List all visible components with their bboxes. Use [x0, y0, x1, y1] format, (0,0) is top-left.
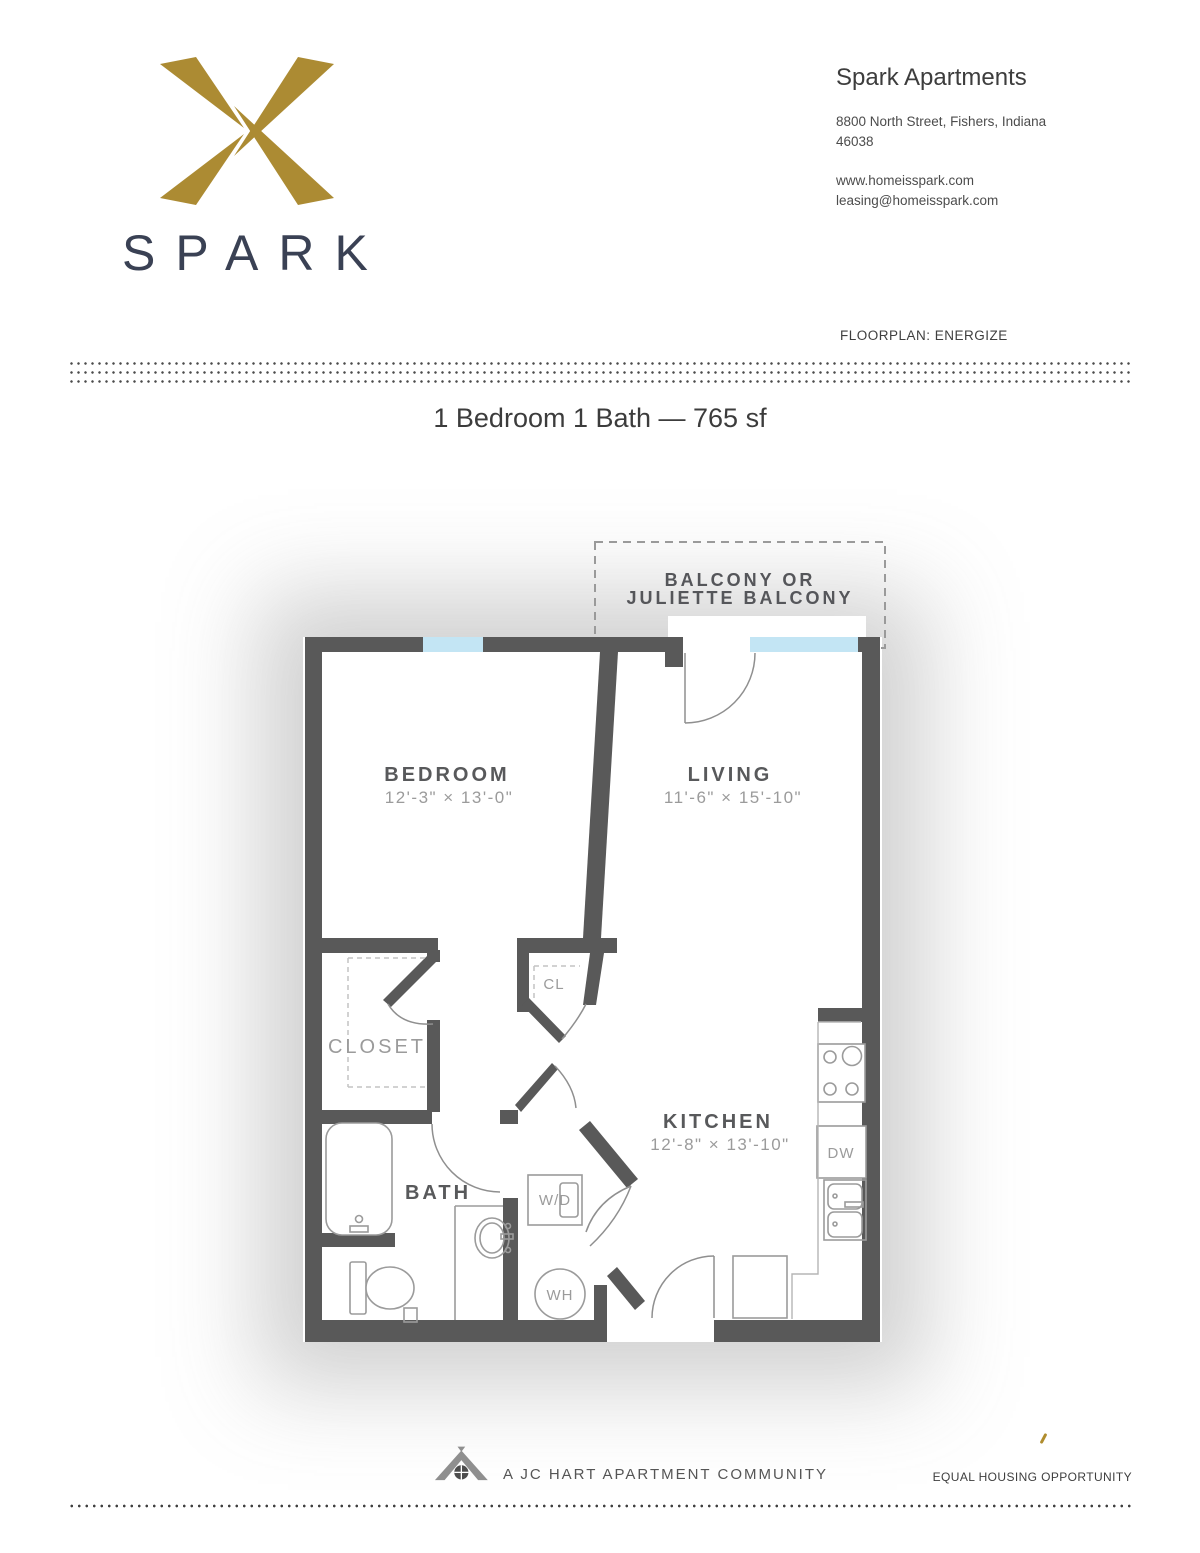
dotted-divider-top	[68, 357, 1132, 383]
closet-door-swing	[388, 1004, 433, 1024]
closet-door-leaf	[383, 953, 438, 1007]
fixtures	[326, 1022, 866, 1322]
washer-dryer-label: W/D	[539, 1192, 571, 1209]
logo-wordmark: SPARK	[122, 224, 388, 282]
bath-label: BATH	[405, 1182, 471, 1204]
living-dims: 11'-6" × 15'-10"	[664, 788, 802, 807]
closet-label: CLOSET	[328, 1036, 426, 1058]
cl-label: CL	[543, 976, 564, 993]
entry-closet-swing-2	[590, 1186, 631, 1246]
logo-blade-bottom-right	[234, 106, 334, 205]
floorplan-drawing: BALCONY OR JULIETTE BALCONY	[290, 520, 900, 1350]
water-heater-label: WH	[547, 1287, 574, 1304]
logo-blade-top-right	[234, 57, 334, 156]
refrigerator	[733, 1256, 787, 1318]
jchart-house-icon	[433, 1437, 491, 1491]
gold-mark	[1040, 1433, 1048, 1444]
cl-door-leaf	[522, 998, 566, 1043]
floorplan-flyer-page: SPARK Spark Apartments 8800 North Street…	[0, 0, 1200, 1553]
wall-entry-angled-1	[579, 1121, 638, 1188]
wall-bottom-left	[305, 1320, 607, 1342]
header-contact-block: Spark Apartments 8800 North Street, Fish…	[836, 64, 1166, 211]
email-link[interactable]: leasing@homeisspark.com	[836, 191, 1166, 211]
entry-door-swing	[652, 1256, 714, 1318]
balcony-label-line2: JULIETTE BALCONY	[626, 588, 853, 608]
logo-blade-top-left	[160, 57, 244, 128]
bedroom-dims: 12'-3" × 13'-0"	[385, 788, 513, 807]
balcony-label-line1: BALCONY OR	[665, 570, 816, 590]
hall-door-swing	[555, 1066, 576, 1108]
toilet-tank	[350, 1262, 366, 1314]
website-link[interactable]: www.homeisspark.com	[836, 171, 1166, 191]
dotted-divider-bottom	[68, 1502, 1132, 1510]
bedroom-window	[423, 637, 483, 652]
kitchen-dims: 12'-8" × 13'-10"	[650, 1135, 789, 1154]
kitchen-sink-counter	[824, 1180, 866, 1240]
page-title: 1 Bedroom 1 Bath — 765 sf	[0, 403, 1200, 434]
dishwasher-label: DW	[828, 1145, 855, 1162]
brand-name: Spark Apartments	[836, 64, 1166, 92]
address-line2: 46038	[836, 132, 1166, 152]
kitchen-label: KITCHEN	[663, 1111, 773, 1133]
walls	[305, 637, 880, 1342]
hall-door-leaf	[515, 1063, 558, 1112]
bedroom-label: BEDROOM	[384, 764, 509, 786]
equal-housing-label: EQUAL HOUSING OPPORTUNITY	[933, 1470, 1132, 1484]
wall-entry-angled-2	[607, 1267, 645, 1310]
cl-door-swing	[562, 1004, 586, 1039]
balcony: BALCONY OR JULIETTE BALCONY	[595, 542, 885, 652]
wall-bedroom-living	[583, 652, 618, 938]
wall-right	[862, 637, 880, 1342]
bath-accessory	[404, 1308, 417, 1322]
community-credit: A JC HART APARTMENT COMMUNITY	[503, 1466, 828, 1483]
wall-bottom-right	[714, 1320, 880, 1342]
spark-x-logo	[152, 56, 342, 206]
floorplan-name-label: FLOORPLAN: ENERGIZE	[840, 328, 1008, 343]
address-line1: 8800 North Street, Fishers, Indiana	[836, 112, 1166, 132]
logo-blade-bottom-left	[160, 134, 244, 205]
wall-left	[305, 637, 322, 1342]
bathtub	[326, 1123, 392, 1235]
balcony-door-swing	[685, 653, 755, 723]
living-window	[750, 637, 858, 652]
toilet-bowl	[366, 1267, 414, 1309]
living-label: LIVING	[688, 764, 773, 786]
kitchen-faucet	[845, 1202, 863, 1207]
